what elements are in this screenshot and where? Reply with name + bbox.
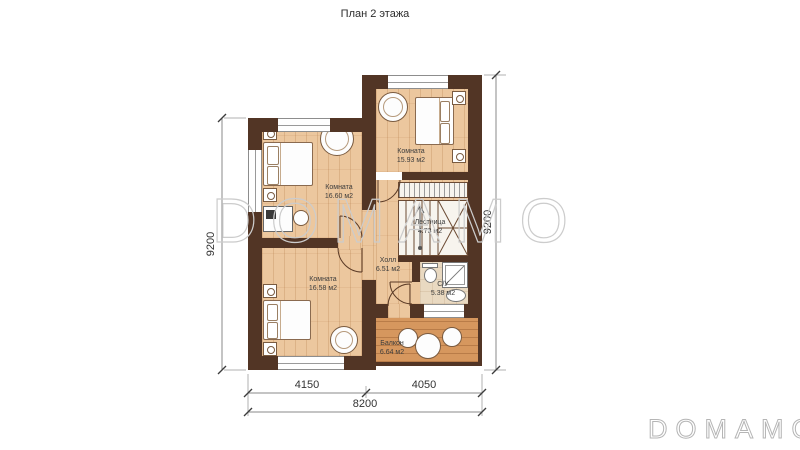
window — [424, 304, 464, 318]
room-name: Балкон — [380, 340, 403, 347]
floor-plan-canvas: План 2 этажа — [0, 0, 800, 450]
room-name: С/У — [437, 281, 448, 288]
wall — [362, 304, 388, 318]
wall — [402, 172, 468, 180]
room-area: 15.93 м2 — [397, 157, 425, 164]
bed-icon — [263, 300, 311, 340]
balcony-door-floor — [388, 304, 410, 318]
room-area: 6.64 м2 — [380, 349, 404, 356]
hall-label: Холл 6.51 м2 — [343, 256, 433, 274]
watermark-corner: DOMAMO — [648, 414, 800, 445]
room-name: Комната — [309, 276, 336, 283]
dimension-bottom-left: 4150 — [295, 379, 319, 391]
window — [278, 118, 330, 132]
bed-icon — [415, 97, 454, 145]
window — [278, 356, 344, 370]
room-area: 6.51 м2 — [376, 266, 400, 273]
watermark-main: DOMAMO — [212, 186, 582, 257]
balcony-wall — [376, 362, 482, 366]
dimension-bottom-total: 8200 — [353, 398, 377, 410]
nightstand-icon — [452, 91, 466, 105]
bathroom-label: С/У 5.38 м2 — [398, 280, 488, 298]
balcony-label: Балкон 6.64 м2 — [347, 339, 437, 357]
wall — [410, 304, 424, 318]
nightstand-icon — [263, 284, 277, 298]
room-3-label: Комната 16.58 м2 — [278, 275, 368, 293]
window — [388, 75, 448, 89]
room-area: 5.38 м2 — [431, 290, 455, 297]
wall — [464, 304, 482, 318]
bed-icon — [263, 142, 313, 186]
room-name: Холл — [380, 257, 397, 264]
balcony-chair-icon — [442, 327, 462, 347]
nightstand-icon — [263, 342, 277, 356]
room-area: 16.58 м2 — [309, 285, 337, 292]
room-name: Комната — [397, 148, 424, 155]
balcony-wall — [478, 318, 482, 366]
room-2-label: Комната 15.93 м2 — [366, 147, 456, 165]
dimension-bottom-right: 4050 — [412, 379, 436, 391]
armchair-icon — [378, 92, 408, 122]
plan-title: План 2 этажа — [230, 8, 520, 20]
